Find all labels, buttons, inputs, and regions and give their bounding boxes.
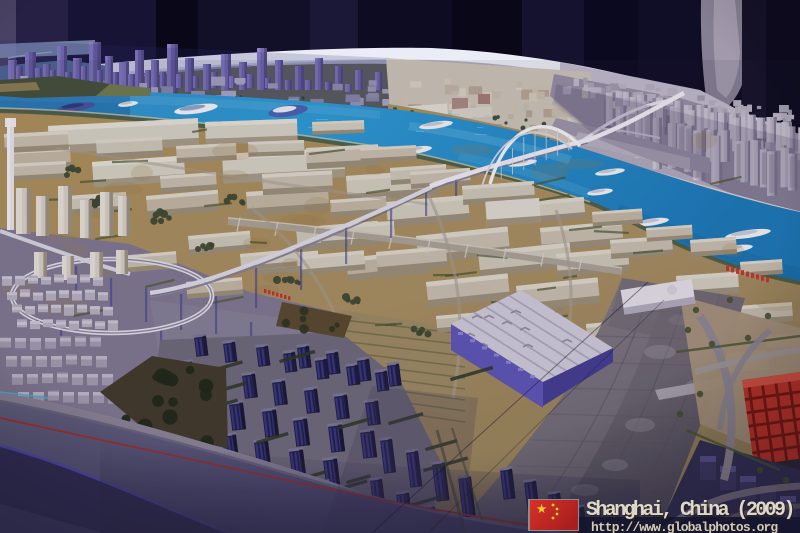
svg-text:★: ★	[536, 502, 547, 516]
svg-text:http://www.globalphotos.org: http://www.globalphotos.org	[591, 520, 778, 533]
svg-text:Shanghai, China (2009): Shanghai, China (2009)	[586, 499, 793, 522]
